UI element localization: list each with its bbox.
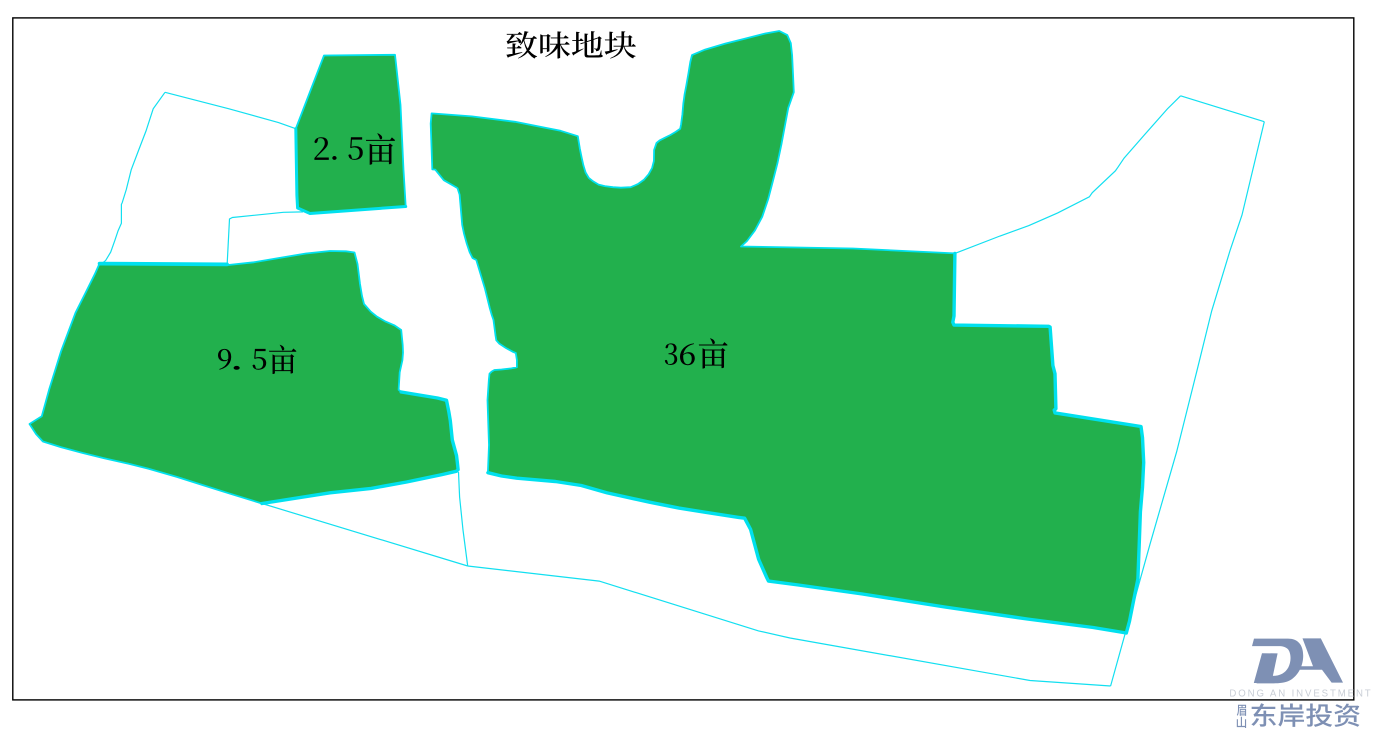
svg-text:DONG AN INVESTMENT: DONG AN INVESTMENT xyxy=(1229,689,1372,700)
